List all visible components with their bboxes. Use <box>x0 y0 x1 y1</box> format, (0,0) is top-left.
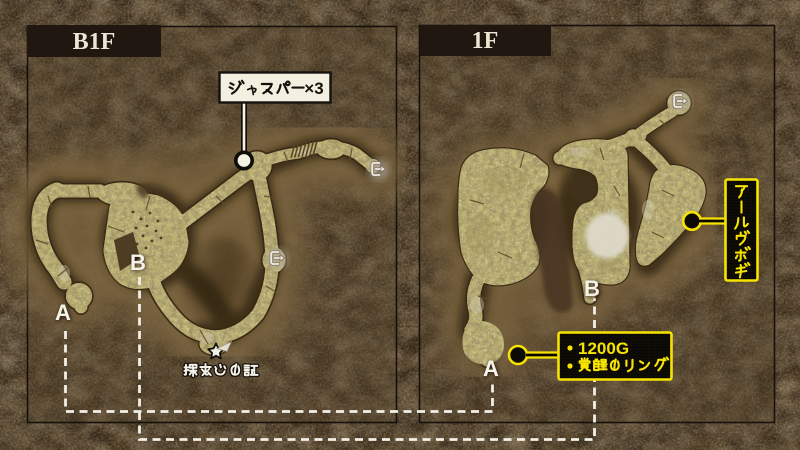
svg-text:1F: 1F <box>472 28 499 54</box>
svg-text:×3: ×3 <box>304 79 323 98</box>
svg-text:A: A <box>483 356 499 381</box>
svg-text:B: B <box>584 276 600 301</box>
svg-text:A: A <box>55 300 71 325</box>
svg-text:B1F: B1F <box>73 29 116 55</box>
svg-text:B: B <box>130 250 146 275</box>
svg-text:1200G: 1200G <box>578 339 629 358</box>
